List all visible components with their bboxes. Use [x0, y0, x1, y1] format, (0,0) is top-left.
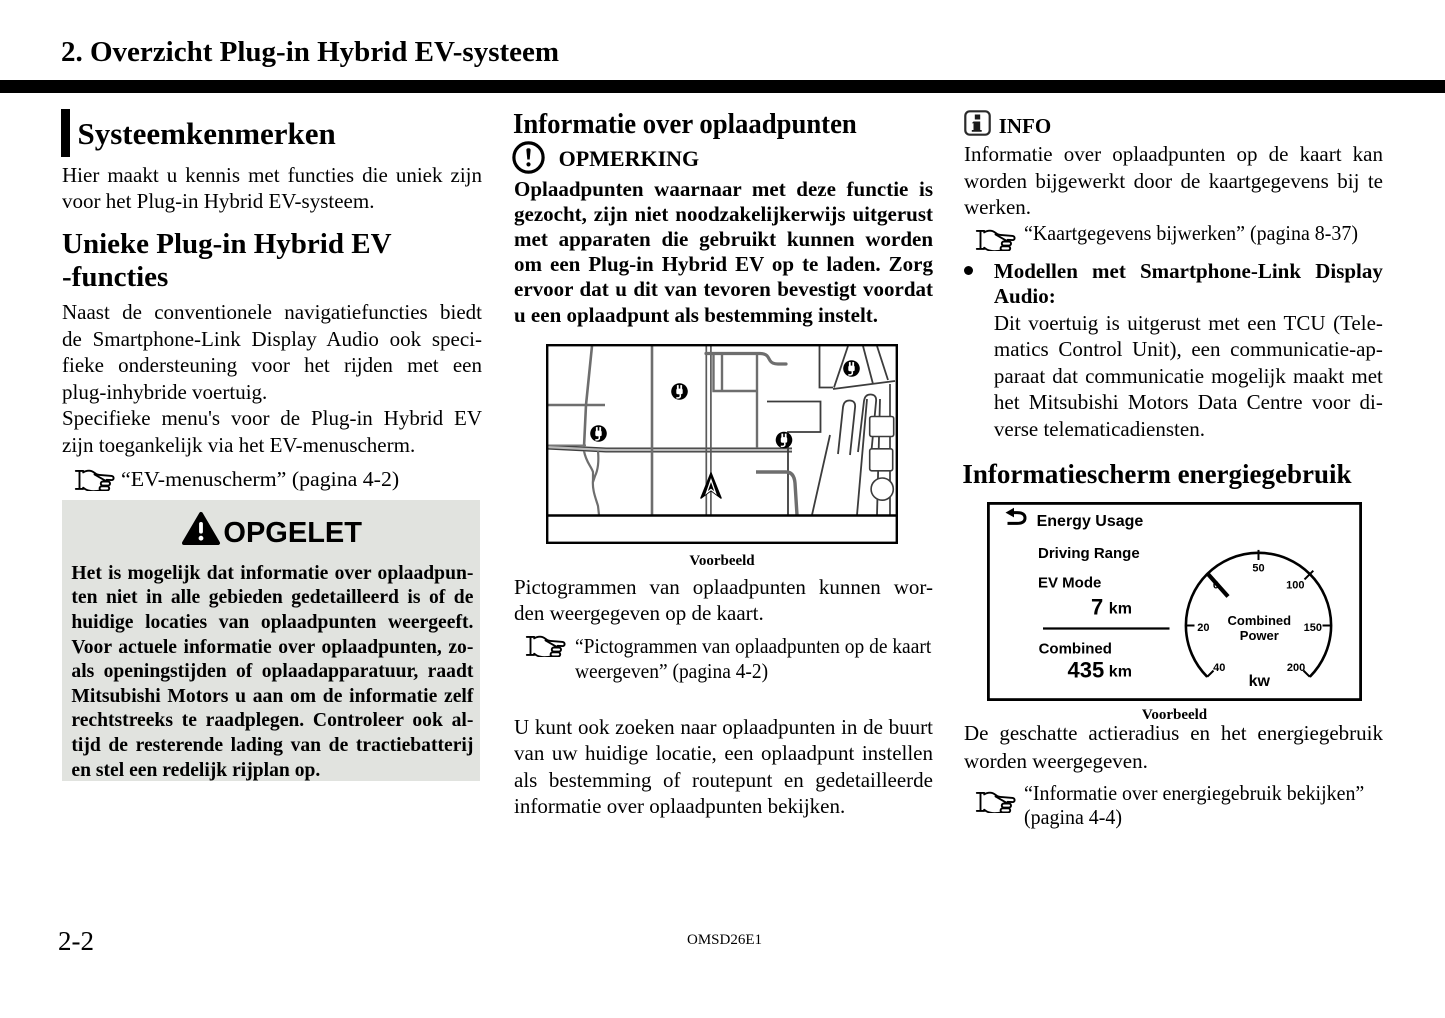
- svg-text:100: 100: [1286, 579, 1304, 591]
- svg-text:km: km: [1109, 601, 1132, 618]
- svg-text:km: km: [1109, 663, 1132, 680]
- svg-text:Power: Power: [1240, 628, 1279, 643]
- svg-text:Combined: Combined: [1039, 641, 1112, 658]
- svg-text:EV Mode: EV Mode: [1038, 575, 1101, 592]
- svg-text:Driving Range: Driving Range: [1038, 545, 1140, 562]
- svg-text:Combined: Combined: [1228, 613, 1292, 628]
- svg-text:Energy Usage: Energy Usage: [1037, 513, 1144, 530]
- svg-text:200: 200: [1287, 662, 1305, 674]
- svg-text:20: 20: [1197, 622, 1209, 634]
- svg-text:0: 0: [1213, 579, 1219, 591]
- svg-text:kw: kw: [1249, 673, 1271, 690]
- svg-text:150: 150: [1304, 622, 1322, 634]
- svg-text:7: 7: [1091, 595, 1103, 620]
- svg-text:40: 40: [1213, 662, 1225, 674]
- svg-text:50: 50: [1252, 563, 1264, 575]
- svg-text:435: 435: [1068, 657, 1105, 682]
